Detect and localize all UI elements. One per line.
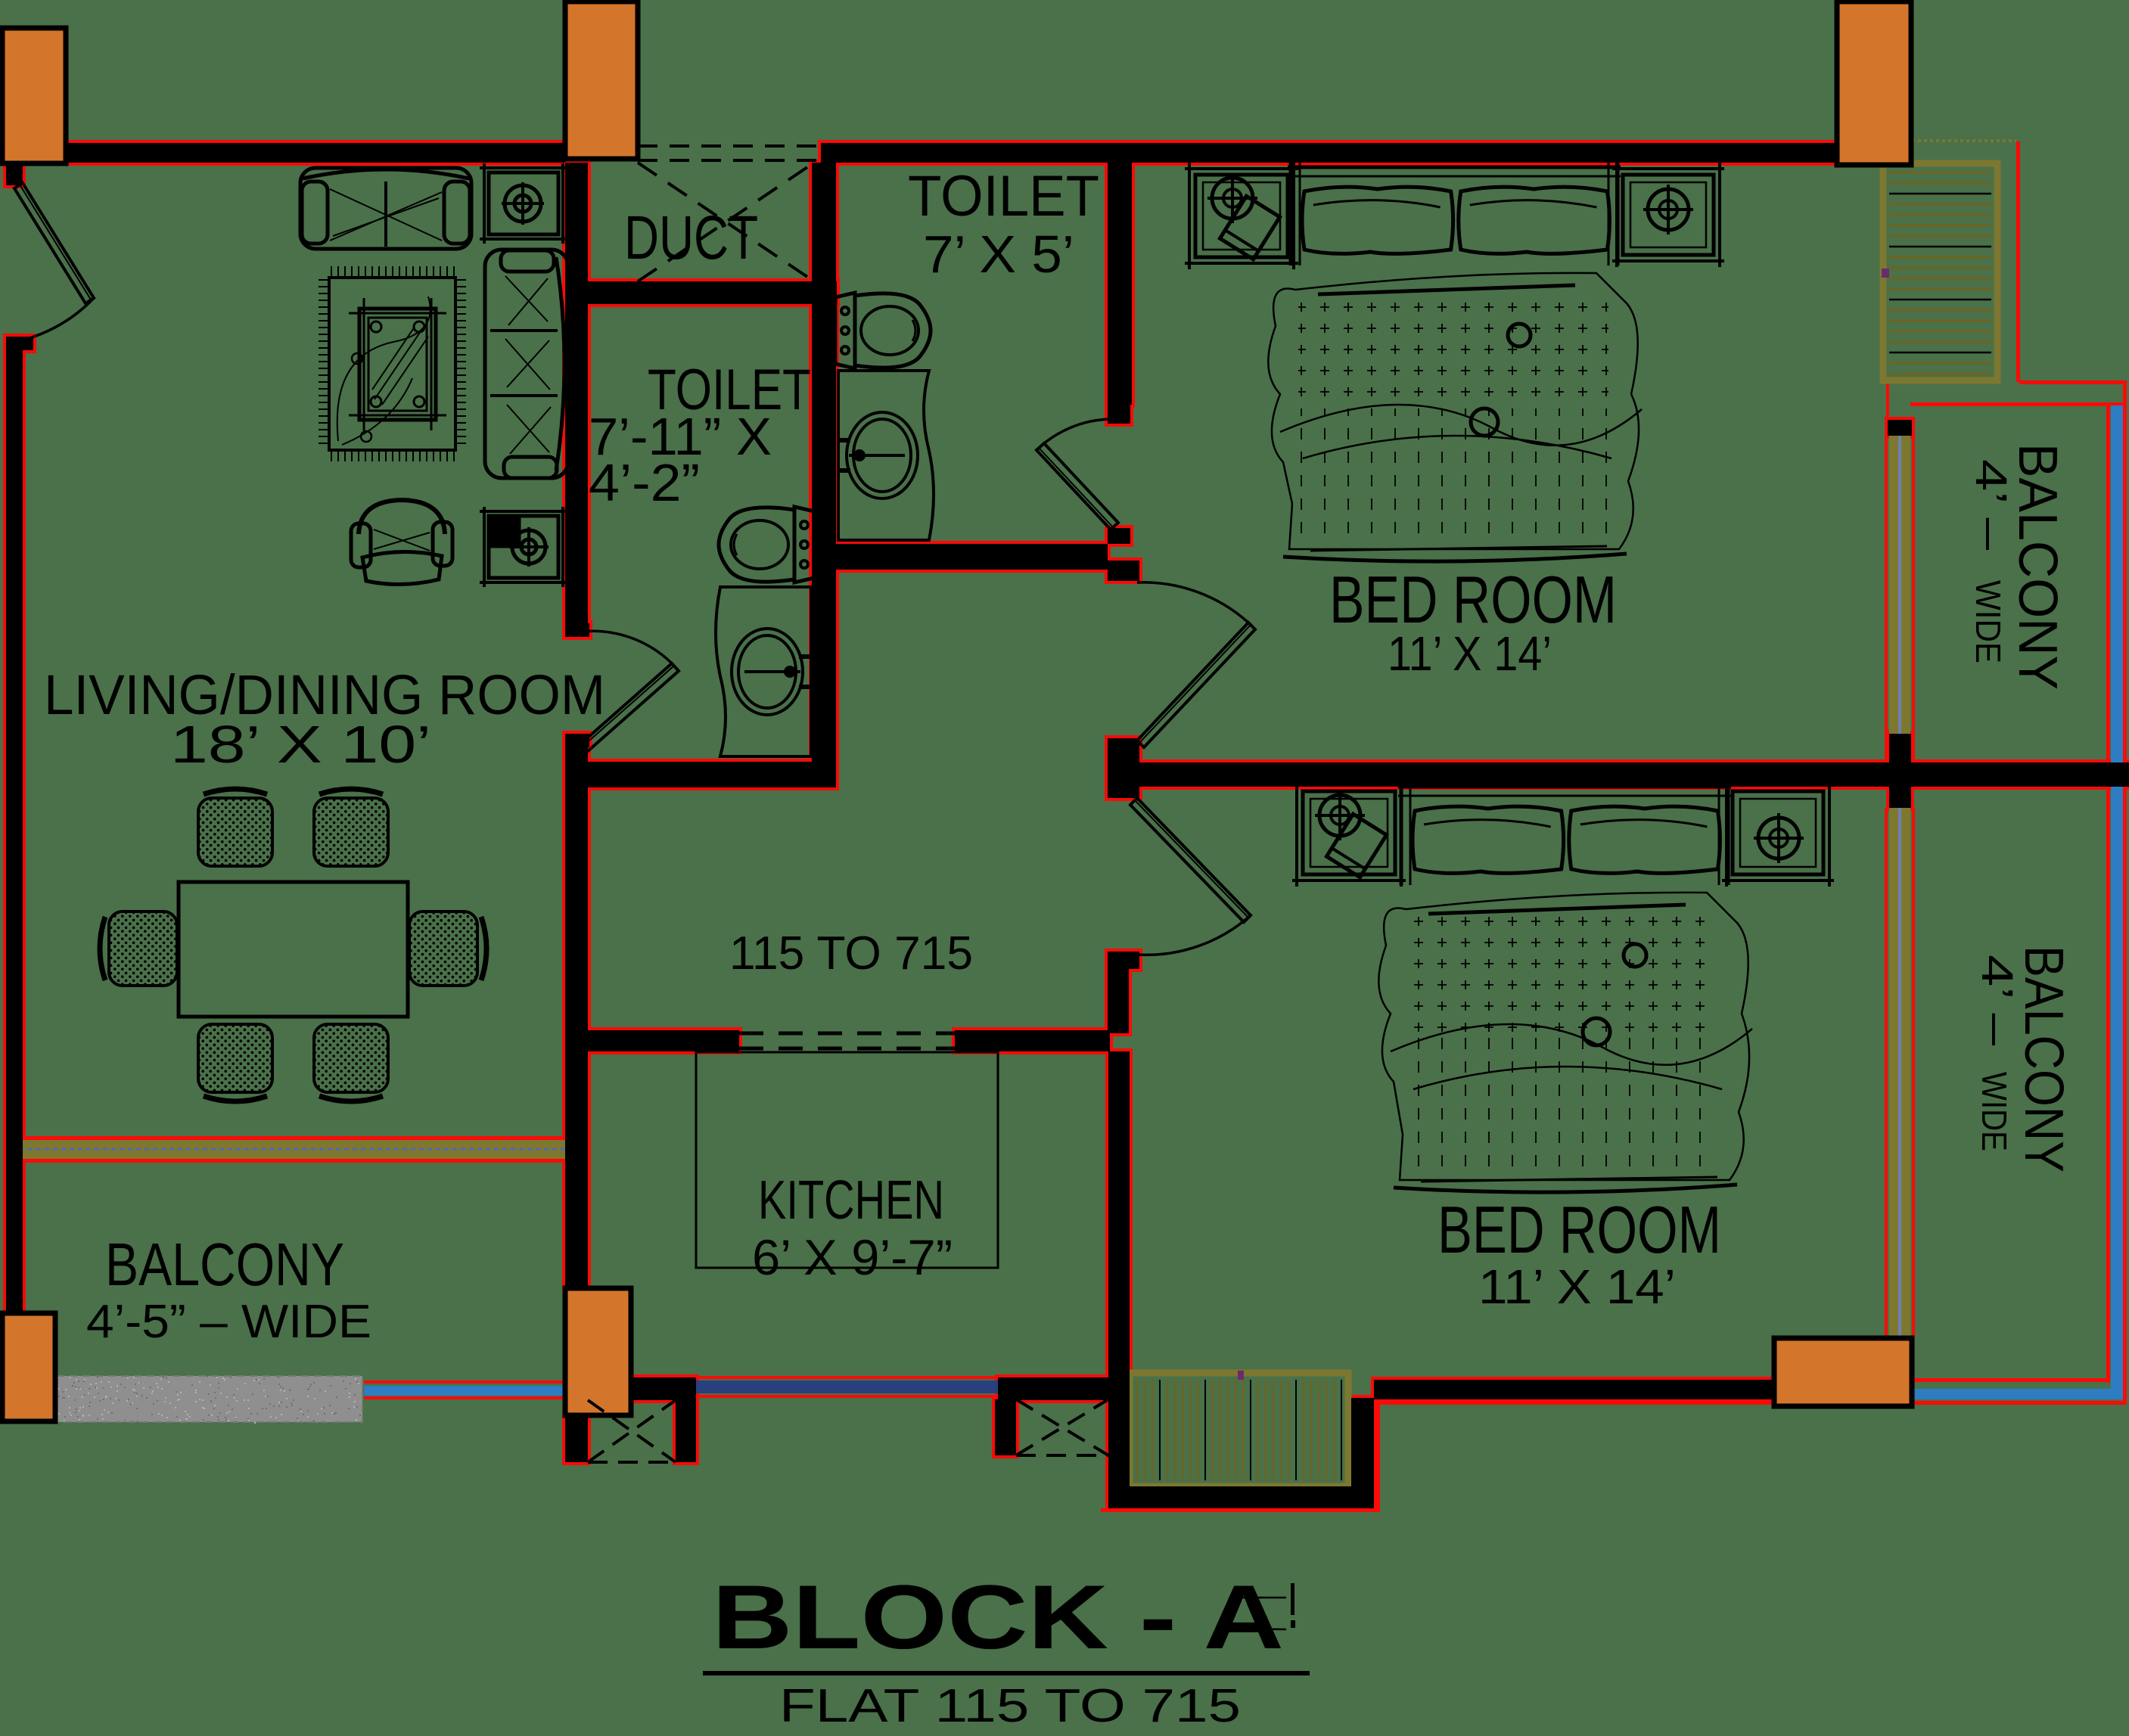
- svg-text:4’ –: 4’ –: [1966, 459, 2016, 551]
- svg-text:4’-5” – WIDE: 4’-5” – WIDE: [86, 1296, 371, 1348]
- svg-text:WIDE: WIDE: [1975, 1072, 2014, 1151]
- svg-text:WIDE: WIDE: [1969, 580, 2008, 663]
- svg-text:BALCONY: BALCONY: [105, 1231, 344, 1298]
- svg-text:11’ X 14’: 11’ X 14’: [1478, 1259, 1676, 1314]
- svg-text:FLAT 115 TO 715: FLAT 115 TO 715: [779, 1680, 1241, 1732]
- svg-text:11’ X 14’: 11’ X 14’: [1388, 626, 1552, 681]
- svg-text:BALCONY: BALCONY: [2007, 443, 2068, 690]
- svg-text:BALCONY: BALCONY: [2013, 946, 2074, 1172]
- svg-text:BLOCK - A: BLOCK - A: [712, 1567, 1284, 1668]
- svg-text:TOILET: TOILET: [908, 164, 1099, 228]
- svg-text:7’ X 5’: 7’ X 5’: [923, 225, 1074, 284]
- svg-text:4’ –: 4’ –: [1972, 955, 2022, 1046]
- svg-text:18’ X 10’: 18’ X 10’: [170, 715, 431, 774]
- svg-text:DUCT: DUCT: [624, 203, 758, 272]
- svg-text:115 TO 715: 115 TO 715: [729, 927, 973, 980]
- svg-text:KITCHEN: KITCHEN: [758, 1170, 944, 1231]
- svg-text:4’-2”: 4’-2”: [589, 453, 700, 512]
- svg-text:BED ROOM: BED ROOM: [1437, 1192, 1721, 1267]
- svg-text:6’ X 9’-7”: 6’ X 9’-7”: [752, 1229, 953, 1285]
